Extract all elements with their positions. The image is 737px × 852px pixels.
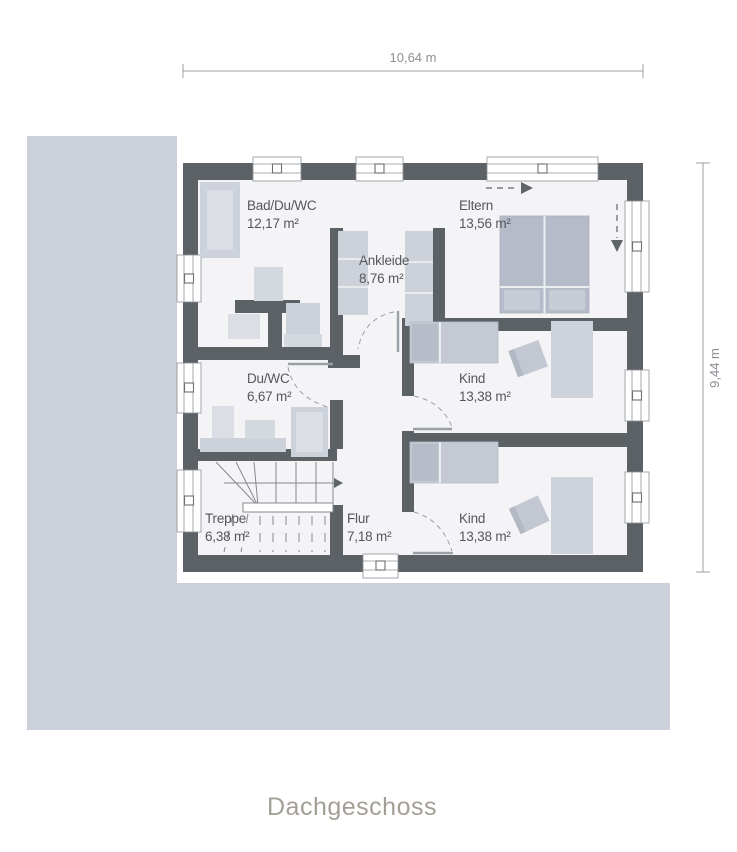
label-bad-name: Bad/Du/WC xyxy=(247,198,317,213)
window-left-bad xyxy=(177,255,201,302)
window-top-ankleide xyxy=(356,157,403,181)
vanity-counter xyxy=(200,438,286,452)
window-left-treppe xyxy=(177,470,201,532)
stair-landing xyxy=(243,503,333,512)
height-dimension-label: 9,44 m xyxy=(707,348,722,388)
toilet-bad xyxy=(228,314,260,339)
window-right-kind1 xyxy=(625,370,649,421)
label-eltern-area: 13,56 m² xyxy=(459,216,511,231)
wall-bad-south xyxy=(198,347,335,360)
label-ankleide-area: 8,76 m² xyxy=(359,271,404,286)
washbasin-duwc xyxy=(212,406,234,438)
label-treppe-area: 6,38 m² xyxy=(205,529,250,544)
washbasin-bad xyxy=(254,267,283,301)
kind2-desk xyxy=(551,477,593,554)
label-kind1-area: 13,38 m² xyxy=(459,389,511,404)
label-kind2-area: 13,38 m² xyxy=(459,529,511,544)
wall-duwc-flur xyxy=(330,400,343,449)
kind1-desk xyxy=(551,321,593,398)
label-ankleide-name: Ankleide xyxy=(359,253,409,268)
window-top-eltern xyxy=(487,157,598,181)
width-dimension: 10,64 m xyxy=(183,50,643,78)
pillow-right xyxy=(549,290,585,310)
label-bad-area: 12,17 m² xyxy=(247,216,299,231)
wall-bad-partition-v xyxy=(268,313,282,349)
label-kind1-name: Kind xyxy=(459,371,485,386)
width-dimension-label: 10,64 m xyxy=(390,50,437,65)
toilet-duwc xyxy=(245,420,275,439)
label-duwc-area: 6,67 m² xyxy=(247,389,292,404)
label-eltern-name: Eltern xyxy=(459,198,493,213)
height-dimension: 9,44 m xyxy=(696,163,722,572)
pillow-left xyxy=(504,290,540,310)
window-right-kind2 xyxy=(625,472,649,523)
window-top-bad xyxy=(253,157,301,181)
bidet-bad xyxy=(286,303,320,337)
page-title: Dachgeschoss xyxy=(267,793,437,821)
window-left-duwc xyxy=(177,363,201,413)
label-flur-name: Flur xyxy=(347,511,370,526)
window-right-eltern xyxy=(625,201,649,292)
site-area-bottom xyxy=(27,583,670,730)
label-treppe-name: Treppe xyxy=(205,511,246,526)
label-duwc-name: Du/WC xyxy=(247,371,290,386)
label-flur-area: 7,18 m² xyxy=(347,529,392,544)
wardrobe-right xyxy=(405,231,433,326)
floorplan-drawing: 10,64 m 9,44 m xyxy=(0,0,737,852)
window-bottom-flur xyxy=(363,554,398,578)
wall-ankleide-eltern xyxy=(433,228,445,331)
floorplan-page: 10,64 m 9,44 m xyxy=(0,0,737,852)
wall-bad-south-stub xyxy=(328,355,360,368)
label-kind2-name: Kind xyxy=(459,511,485,526)
eltern-furniture xyxy=(500,216,589,313)
